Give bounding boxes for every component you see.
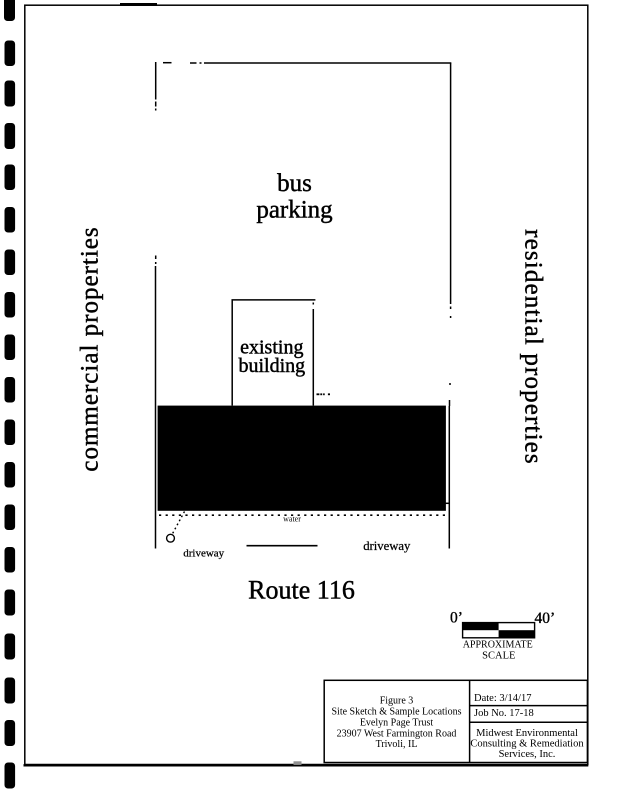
svg-text:Consulting & Remediation: Consulting & Remediation (470, 739, 584, 750)
svg-text:parking: parking (256, 196, 333, 223)
svg-text:driveway: driveway (183, 548, 224, 560)
svg-text:SCALE: SCALE (482, 651, 515, 662)
svg-text:Site Sketch & Sample Locations: Site Sketch & Sample Locations (332, 707, 462, 718)
svg-text:Route 116: Route 116 (248, 575, 355, 604)
svg-text:commercial properties: commercial properties (77, 226, 104, 471)
svg-text:building: building (238, 355, 305, 377)
svg-text:bus: bus (277, 170, 312, 197)
svg-text:Date: 3/14/17: Date: 3/14/17 (474, 693, 531, 704)
svg-text:Midwest Environmental: Midwest Environmental (476, 728, 578, 739)
svg-text:driveway: driveway (363, 539, 411, 553)
svg-text:23907 West Farmington Road: 23907 West Farmington Road (337, 728, 457, 739)
svg-text:Job No. 17-18: Job No. 17-18 (474, 708, 534, 719)
svg-text:Figure 3: Figure 3 (380, 696, 414, 707)
svg-text:0’: 0’ (450, 609, 463, 626)
svg-text:Trivoli, IL: Trivoli, IL (376, 739, 418, 750)
svg-text:APPROXIMATE: APPROXIMATE (463, 640, 533, 651)
svg-text:residential properties: residential properties (520, 229, 547, 465)
svg-text:water: water (283, 515, 301, 524)
svg-text:Services, Inc.: Services, Inc. (499, 749, 556, 760)
svg-text:Evelyn Page Trust: Evelyn Page Trust (360, 718, 434, 729)
svg-text:40’: 40’ (535, 610, 556, 627)
